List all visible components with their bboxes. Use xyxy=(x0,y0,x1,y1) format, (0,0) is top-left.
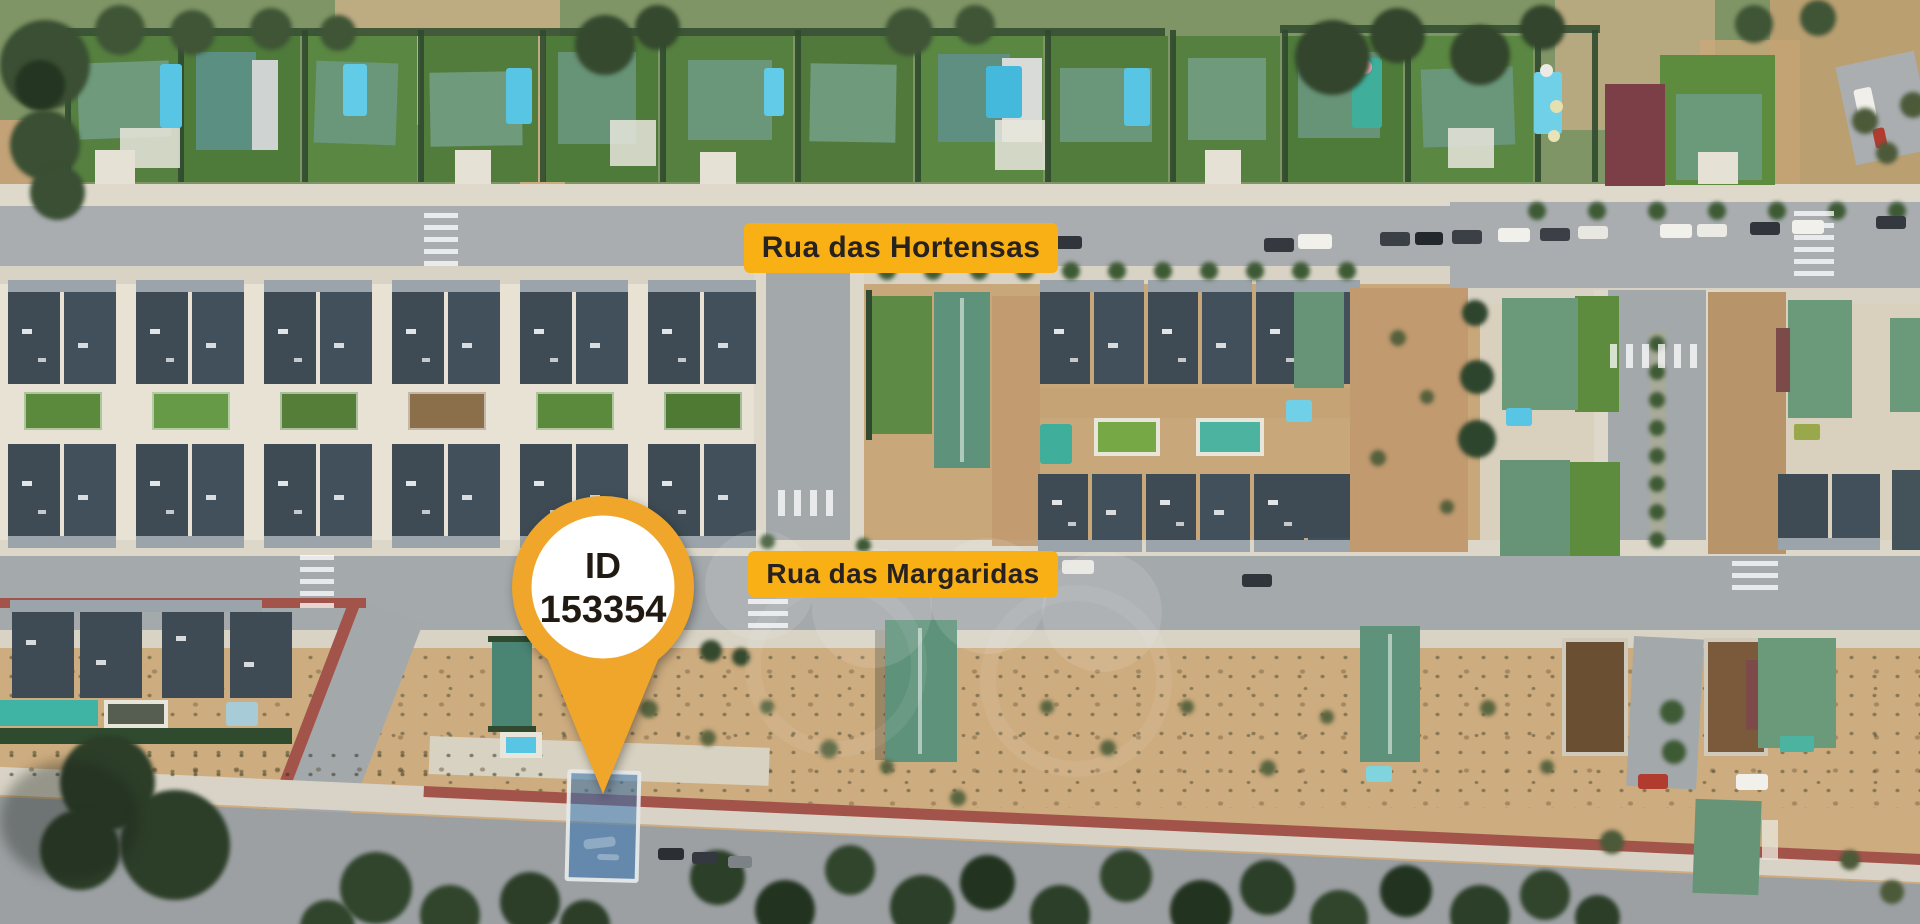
tree xyxy=(250,8,292,50)
garage-roof xyxy=(1146,540,1250,552)
tree xyxy=(1370,450,1386,466)
building-roof xyxy=(1254,474,1304,540)
tree xyxy=(885,8,933,56)
building-roof xyxy=(648,292,700,384)
building-roof xyxy=(392,292,444,384)
tree xyxy=(1520,870,1570,920)
tree xyxy=(1240,860,1295,915)
tree xyxy=(1852,108,1878,134)
driveway xyxy=(1698,152,1738,184)
swimming-pool xyxy=(1286,400,1312,422)
tree xyxy=(30,165,85,220)
crosswalk xyxy=(748,592,788,628)
building-roof xyxy=(196,52,256,150)
skylight xyxy=(1178,358,1186,362)
garage-roof xyxy=(1040,280,1144,292)
building-roof xyxy=(1605,84,1665,186)
tree xyxy=(1292,262,1310,280)
skylight xyxy=(590,343,600,348)
vehicle xyxy=(1660,224,1692,238)
tree xyxy=(1200,262,1218,280)
building-roof xyxy=(1148,292,1198,384)
tree xyxy=(1649,476,1665,492)
garden xyxy=(872,296,932,434)
vehicle xyxy=(1736,774,1768,790)
garage-roof xyxy=(648,280,756,292)
garden xyxy=(408,392,486,430)
building-roof xyxy=(1202,292,1252,384)
crosswalk xyxy=(1610,344,1704,368)
garage-roof xyxy=(8,536,116,548)
building-roof xyxy=(1788,300,1852,418)
swimming-pool xyxy=(0,700,98,726)
swimming-pool xyxy=(1366,766,1392,782)
tree xyxy=(320,15,356,51)
building-roof xyxy=(1890,318,1920,412)
building-roof xyxy=(1778,474,1828,538)
skylight xyxy=(1268,500,1278,505)
building-roof xyxy=(704,292,756,384)
vehicle xyxy=(1638,774,1668,789)
roof-ridge xyxy=(918,628,922,754)
skylight xyxy=(294,358,302,362)
vehicle xyxy=(1498,228,1530,242)
tree xyxy=(880,760,894,774)
skylight xyxy=(1286,358,1294,362)
building-roof xyxy=(520,292,572,384)
garage-roof xyxy=(264,280,372,292)
vehicle xyxy=(728,856,752,868)
terrace xyxy=(1762,820,1778,860)
building-roof xyxy=(64,444,116,536)
satellite-photo-layer xyxy=(0,0,1920,924)
skylight xyxy=(406,481,416,486)
tree xyxy=(1420,390,1434,404)
garden xyxy=(24,392,102,430)
skylight xyxy=(462,495,472,500)
terrace xyxy=(995,120,1045,170)
tree xyxy=(15,60,65,110)
vehicle xyxy=(658,848,684,860)
skylight xyxy=(206,343,216,348)
tree xyxy=(820,740,838,758)
tree xyxy=(1708,202,1726,220)
vacant-lot xyxy=(1562,638,1628,756)
hedge xyxy=(540,30,546,182)
vehicle xyxy=(1062,560,1094,574)
map-feature xyxy=(992,296,1040,546)
tree xyxy=(1648,202,1666,220)
tree xyxy=(1480,700,1496,716)
skylight xyxy=(278,481,288,486)
skylight xyxy=(462,343,472,348)
street-label-text: Rua das Margaridas xyxy=(766,558,1039,590)
garage-roof xyxy=(264,536,372,548)
tree xyxy=(1460,360,1494,394)
tree xyxy=(500,872,560,924)
building-roof xyxy=(1038,474,1088,540)
building-roof xyxy=(8,292,60,384)
tree xyxy=(1840,850,1860,870)
pin-id-label: ID xyxy=(585,545,621,586)
tree xyxy=(1588,202,1606,220)
skylight xyxy=(1216,343,1226,348)
street-label-margaridas: Rua das Margaridas xyxy=(748,551,1058,597)
skylight xyxy=(334,343,344,348)
tree xyxy=(700,730,716,746)
skylight xyxy=(550,358,558,362)
swimming-pool xyxy=(1098,422,1156,452)
tree xyxy=(955,5,995,45)
tree xyxy=(1520,5,1565,50)
roof-ridge xyxy=(960,298,964,462)
building-roof xyxy=(809,63,896,142)
vehicle xyxy=(1415,232,1443,245)
tree xyxy=(1320,710,1334,724)
building-roof xyxy=(192,292,244,384)
building-roof xyxy=(136,444,188,536)
garden xyxy=(664,392,742,430)
vehicle xyxy=(1298,234,1332,249)
crosswalk xyxy=(1732,556,1778,590)
tree xyxy=(1649,392,1665,408)
hedge xyxy=(1045,30,1051,182)
tree xyxy=(1246,262,1264,280)
skylight xyxy=(22,481,32,486)
skylight xyxy=(534,329,544,334)
building-roof xyxy=(264,292,316,384)
tree xyxy=(1649,504,1665,520)
crosswalk xyxy=(424,208,458,266)
garden xyxy=(280,392,358,430)
building-roof xyxy=(320,444,372,536)
hedge xyxy=(418,30,424,182)
tree xyxy=(1450,25,1510,85)
swimming-pool xyxy=(1780,736,1814,752)
parasol xyxy=(1540,64,1553,77)
vehicle xyxy=(1578,226,1608,239)
tree xyxy=(760,700,774,714)
tree xyxy=(1440,500,1454,514)
tree xyxy=(1768,202,1786,220)
building-roof xyxy=(162,612,224,698)
building-roof xyxy=(1758,638,1836,748)
garage-roof xyxy=(392,280,500,292)
tree xyxy=(1108,262,1126,280)
crosswalk xyxy=(300,550,334,608)
building-roof xyxy=(136,292,188,384)
tree xyxy=(1649,448,1665,464)
tree xyxy=(1390,330,1406,346)
map-feature xyxy=(0,206,1450,268)
driveway xyxy=(95,150,135,184)
skylight xyxy=(1160,500,1170,505)
building-roof xyxy=(8,444,60,536)
tree xyxy=(1880,880,1904,904)
tree xyxy=(732,648,750,666)
tree xyxy=(1370,8,1425,63)
skylight xyxy=(1162,329,1172,334)
skylight xyxy=(1284,522,1292,526)
skylight xyxy=(678,358,686,362)
terrace xyxy=(610,120,656,166)
swimming-pool xyxy=(1124,68,1150,126)
roof-ridge xyxy=(1388,634,1392,754)
building-roof xyxy=(264,444,316,536)
tree xyxy=(960,855,1015,910)
tree xyxy=(1100,850,1152,902)
tree xyxy=(1735,5,1773,43)
tree xyxy=(1462,300,1488,326)
tree xyxy=(1528,202,1546,220)
driveway xyxy=(700,152,736,184)
swimming-pool xyxy=(1040,424,1072,464)
skylight xyxy=(1052,500,1062,505)
tree xyxy=(1876,142,1898,164)
vehicle xyxy=(1054,236,1082,249)
map-feature xyxy=(850,268,864,556)
map-feature xyxy=(1708,292,1786,554)
skylight xyxy=(1106,510,1116,515)
garage-roof xyxy=(520,280,628,292)
building-roof xyxy=(1040,292,1090,384)
tree xyxy=(1458,420,1496,458)
tree xyxy=(1800,0,1836,36)
driveway xyxy=(455,150,491,184)
parasol xyxy=(1548,130,1560,142)
garage-roof xyxy=(8,280,116,292)
map-feature xyxy=(1450,202,1920,290)
garage-roof xyxy=(1038,540,1142,552)
tree xyxy=(1338,262,1356,280)
building-roof xyxy=(80,612,142,698)
garden xyxy=(1568,462,1620,556)
swimming-pool xyxy=(986,66,1022,118)
building-roof xyxy=(1146,474,1196,540)
map-pin[interactable]: ID 153354 xyxy=(506,492,700,802)
swimming-pool xyxy=(343,64,367,116)
vehicle xyxy=(1540,228,1570,241)
skylight xyxy=(294,510,302,514)
swimming-pool xyxy=(1200,422,1260,452)
vehicle xyxy=(1242,574,1272,587)
vehicle xyxy=(1697,224,1727,237)
building-roof xyxy=(1094,292,1144,384)
skylight xyxy=(244,662,254,667)
tree xyxy=(1180,700,1194,714)
tree xyxy=(170,10,215,55)
pin-id-value: 153354 xyxy=(540,589,667,631)
vehicle xyxy=(1792,220,1824,234)
garden xyxy=(152,392,230,430)
skylight xyxy=(1108,343,1118,348)
vehicle xyxy=(692,852,718,864)
building-roof xyxy=(1294,292,1344,388)
garage-roof xyxy=(1778,538,1880,550)
tree-shadow xyxy=(0,760,140,880)
building-roof xyxy=(1832,474,1880,538)
garage-roof xyxy=(1256,280,1360,292)
tree xyxy=(635,5,680,50)
skylight xyxy=(422,510,430,514)
skylight xyxy=(176,636,186,641)
building-roof xyxy=(688,60,772,140)
tree xyxy=(950,790,966,806)
skylight xyxy=(334,495,344,500)
hedge xyxy=(795,30,801,182)
terrace xyxy=(1776,328,1790,392)
skylight xyxy=(38,358,46,362)
building-roof xyxy=(576,292,628,384)
tree xyxy=(575,15,635,75)
skylight xyxy=(78,343,88,348)
building-roof xyxy=(448,292,500,384)
crosswalk xyxy=(778,490,840,516)
skylight xyxy=(166,510,174,514)
skylight xyxy=(26,640,36,645)
skylight xyxy=(150,481,160,486)
vehicle xyxy=(1876,216,1906,229)
skylight xyxy=(1068,522,1076,526)
garage-roof xyxy=(136,280,244,292)
tree xyxy=(1260,760,1276,776)
building-roof xyxy=(1692,799,1761,895)
hedge xyxy=(660,30,666,182)
tree xyxy=(1154,262,1172,280)
garage-roof xyxy=(1254,540,1358,552)
skylight xyxy=(406,329,416,334)
skylight xyxy=(718,495,728,500)
skylight xyxy=(96,660,106,665)
building-roof xyxy=(12,612,74,698)
street-label-hortensas: Rua das Hortensas xyxy=(744,223,1058,273)
skylight xyxy=(1270,329,1280,334)
skylight xyxy=(662,329,672,334)
skylight xyxy=(1214,510,1224,515)
hedge xyxy=(302,30,308,182)
tree xyxy=(1600,830,1624,854)
swimming-pool xyxy=(226,702,258,726)
skylight xyxy=(422,358,430,362)
parcel-mark xyxy=(597,854,619,861)
building-roof xyxy=(1502,298,1578,410)
swimming-pool xyxy=(160,64,182,128)
skylight xyxy=(1070,358,1078,362)
building-roof xyxy=(448,444,500,536)
building-roof xyxy=(1892,470,1920,550)
building-roof xyxy=(704,444,756,536)
tree xyxy=(1649,532,1665,548)
tree xyxy=(1649,420,1665,436)
building-roof xyxy=(64,292,116,384)
skylight xyxy=(278,329,288,334)
skylight xyxy=(38,510,46,514)
hedge xyxy=(0,728,292,744)
tree xyxy=(95,5,145,55)
skylight xyxy=(534,481,544,486)
garden xyxy=(536,392,614,430)
tree xyxy=(1660,700,1684,724)
vehicle xyxy=(1750,222,1780,235)
tree xyxy=(1062,262,1080,280)
vehicle xyxy=(1452,230,1482,244)
map-feature xyxy=(875,630,885,760)
swimming-pool xyxy=(506,68,532,124)
hedge xyxy=(1170,30,1176,182)
garage-roof xyxy=(1148,280,1252,292)
garage-roof xyxy=(10,600,262,612)
swimming-pool xyxy=(1506,408,1532,426)
building-roof xyxy=(1092,474,1142,540)
tree xyxy=(1100,740,1116,756)
tree xyxy=(760,534,775,549)
building-roof xyxy=(1500,460,1570,556)
driveway xyxy=(1205,150,1241,184)
building-roof xyxy=(1188,58,1266,140)
swimming-pool xyxy=(764,68,784,116)
building-roof xyxy=(230,612,292,698)
tree xyxy=(1540,760,1554,774)
vehicle xyxy=(1380,232,1410,246)
building-roof xyxy=(252,60,278,150)
tree xyxy=(1380,865,1432,917)
street-label-text: Rua das Hortensas xyxy=(762,231,1041,265)
skylight xyxy=(1176,522,1184,526)
tree xyxy=(700,640,722,662)
skylight xyxy=(78,495,88,500)
skylight xyxy=(662,481,672,486)
vehicle xyxy=(1264,238,1294,252)
skylight xyxy=(1054,329,1064,334)
building-roof xyxy=(192,444,244,536)
garage-roof xyxy=(136,536,244,548)
pin-face xyxy=(532,516,675,659)
swimming-pool xyxy=(1794,424,1820,440)
tree xyxy=(825,845,875,895)
tree xyxy=(1040,700,1054,714)
skylight xyxy=(150,329,160,334)
tree xyxy=(1900,92,1920,118)
building-roof xyxy=(392,444,444,536)
hedge xyxy=(1592,30,1598,182)
skylight xyxy=(718,343,728,348)
parasol xyxy=(1550,100,1563,113)
parcel-mark xyxy=(583,836,616,850)
swimming-pool xyxy=(108,704,164,724)
hedge xyxy=(1282,30,1288,182)
building-roof xyxy=(320,292,372,384)
garage-roof xyxy=(392,536,500,548)
skylight xyxy=(22,329,32,334)
tree xyxy=(1295,20,1370,95)
skylight xyxy=(206,495,216,500)
terrace xyxy=(1448,128,1494,168)
map-canvas[interactable]: Rua das Hortensas Rua das Margaridas ID … xyxy=(0,0,1920,924)
building-roof xyxy=(1200,474,1250,540)
tree xyxy=(1662,740,1686,764)
skylight xyxy=(166,358,174,362)
